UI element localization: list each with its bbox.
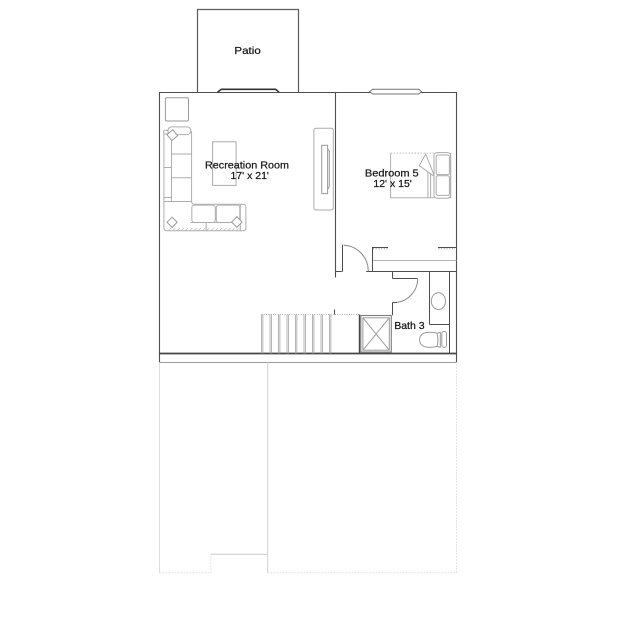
svg-text:Bath 3: Bath 3 — [394, 320, 425, 332]
svg-text:Patio: Patio — [234, 45, 260, 57]
svg-text:17' x 21': 17' x 21' — [230, 170, 268, 182]
svg-text:12' x 15': 12' x 15' — [373, 178, 411, 190]
